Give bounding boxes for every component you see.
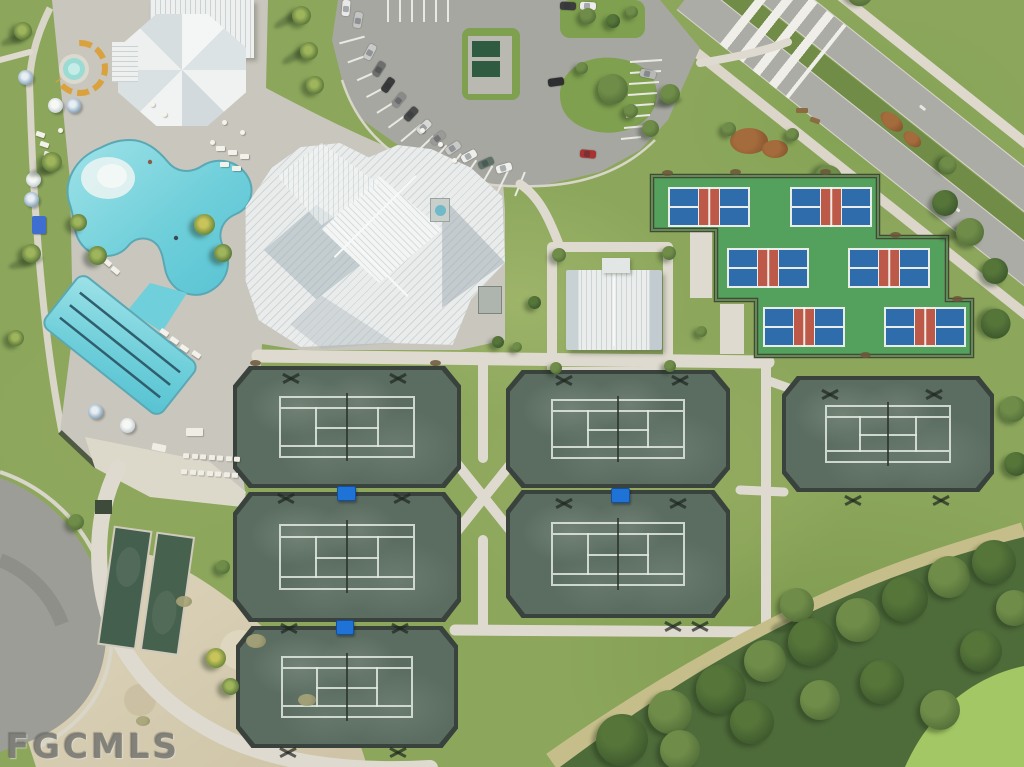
pool-umbrella [88,404,103,419]
court-bench [926,388,942,401]
tennis-court [233,492,461,622]
palm-tree [194,214,215,235]
pickleball-court [727,248,809,288]
sh rub [662,246,676,260]
shrub [552,248,566,262]
pool-lounger [216,146,225,151]
pool-beach-entry [97,164,127,188]
patio-table [240,130,245,135]
enclosure-roof [472,41,500,57]
pool-house-wing [112,42,138,82]
pool-umbrella [66,98,81,113]
mulch [952,296,963,302]
walkway-pickleball [720,304,744,354]
walkway-pickleball [690,232,712,298]
patio-table [162,112,167,117]
court-bench [672,374,688,387]
tree [780,588,814,622]
pool-house [112,0,264,134]
pickleball-line [670,206,699,208]
shrub [528,296,541,309]
tennis-net [346,393,348,461]
preserve-tree [960,630,1002,672]
patio-table [150,102,155,107]
parked-car [580,149,597,158]
garden-shed [95,500,112,514]
preserve-tree [860,660,904,704]
mulch [730,169,741,175]
spa-courtyard [430,198,450,222]
preserve-tree [800,680,840,720]
tennis-lines [825,405,951,463]
tree [956,218,984,246]
pool-umbrella [120,418,135,433]
court-bench [392,622,408,635]
court-bench [278,492,294,505]
pickleball-court [884,307,966,347]
enclosure-roof [472,61,500,77]
scrub-brush [246,634,266,648]
tennis-net [887,402,889,466]
pickleball-court [668,187,750,227]
parked-car [560,2,576,11]
pickleball-line [899,267,928,269]
pool-lounger [220,162,229,167]
tree [982,258,1008,284]
palm-tree [88,246,107,265]
preserve-tree [882,576,928,622]
equipment-pad [478,286,502,314]
preserve-tree [648,690,692,734]
tennis-surface [240,630,454,744]
shrub [626,6,638,18]
preserve-tree [660,730,700,767]
tennis-lines [551,399,685,458]
palm-tree [300,42,318,60]
court-bench [390,372,406,385]
tennis-court [506,370,730,488]
mulch [820,169,831,175]
swimmer [148,160,152,164]
tree [660,84,680,104]
shrub [550,362,562,374]
pickleball-line [792,206,821,208]
preserve-tree [744,640,786,682]
patio-table [210,140,215,145]
pickleball-line [765,326,794,328]
tennis-court [236,626,458,748]
mulch [430,360,441,366]
shade-cabana [337,486,356,501]
patio-table [222,120,227,125]
blue-daybed [32,216,46,234]
bench [796,108,808,113]
pool-umbrella [24,192,39,207]
palm-tree [222,678,239,695]
preserve-tree [972,540,1016,584]
shrub [722,122,736,136]
tree [68,514,84,530]
shrub [664,360,676,372]
preserve-tree [730,700,774,744]
shrub [606,14,620,28]
scrub-brush [298,694,316,706]
mulch [662,170,673,176]
pickleball-line [719,206,748,208]
pool-lounger [240,154,249,159]
mulch [860,352,871,358]
pickleball-line [935,326,964,328]
court-bench [394,492,410,505]
patio-table [452,158,457,163]
tennis-surface [786,380,990,488]
shrub [580,8,596,24]
walkway-crosswalk-link [700,42,788,63]
palm-tree [70,214,87,231]
court-bench [390,746,406,759]
parked-car [341,0,350,16]
pavilion-ridge [613,274,615,346]
tennis-court [506,490,730,618]
shade-cabana [336,620,354,635]
watermark: FGCMLS [6,727,180,767]
patio-table [420,128,425,133]
tennis-court [782,376,994,492]
tennis-court [233,366,461,488]
tennis-net [617,396,619,461]
terrace-table [186,428,203,436]
courts-pavilion [566,270,662,350]
pickleball-line [814,326,843,328]
shade-cabana [611,488,630,503]
preserve-tree [788,618,836,666]
shrub [512,342,522,352]
court-bench [822,388,838,401]
pickleball-line [841,206,870,208]
palm-tree [214,244,232,262]
preserve-tree [596,714,648,766]
court-bench [665,620,681,633]
pool-umbrella [48,98,63,113]
aerial-photo: FGCMLS [0,0,1024,767]
mulch [890,232,901,238]
shrub [624,104,638,118]
shrub [786,128,799,141]
court-bench [692,620,708,633]
tennis-net [346,653,348,721]
pickleball-net [830,187,832,227]
preserve-tree [996,590,1024,626]
pickleball-court [848,248,930,288]
preserve-tree [928,556,970,598]
court-bench [933,494,949,507]
pickleball-net [888,248,890,288]
tree [932,190,958,216]
tennis-surface [510,494,726,614]
walkway-promenade [258,356,768,362]
preserve-tree [836,598,880,642]
shrub [492,336,504,348]
pickleball-line [778,267,807,269]
pool-umbrella [18,70,33,85]
pickleball-net [924,307,926,347]
tennis-surface [510,374,726,484]
tennis-net [617,518,619,590]
tennis-lines [279,396,415,458]
palm-tree [42,152,62,172]
tennis-lines [279,524,415,590]
pickleball-line [850,267,879,269]
palm-tree [206,648,226,668]
tennis-lines [551,522,685,587]
court-bench [670,497,686,510]
palm-tree [292,6,311,25]
pickleball-net [767,248,769,288]
pickleball-court [763,307,845,347]
court-bench [281,622,297,635]
swimmer [174,236,178,240]
patio-table [58,128,63,133]
pickleball-line [729,267,758,269]
tennis-surface [237,496,457,618]
clubhouse [243,143,505,349]
pickleball-net [708,187,710,227]
court-bench [556,497,572,510]
tree [1004,452,1024,476]
tennis-lines [281,656,414,718]
palm-tree [22,244,41,263]
shrub [576,62,588,74]
scrub-brush [136,716,150,726]
patio-table [438,142,443,147]
tennis-net [346,520,348,593]
pool-lounger [228,150,237,155]
court-bench [280,746,296,759]
court-bench [283,372,299,385]
preserve-tree [920,690,960,730]
tree [642,120,659,137]
tree [216,560,230,574]
court-bench [845,494,861,507]
tree [1000,396,1024,422]
pool-lounger [232,166,241,171]
pavilion-entry-roof [602,258,630,273]
court-bench [556,374,572,387]
palm-tree [14,22,32,40]
mulch [250,360,261,366]
pickleball-net [803,307,805,347]
pickleball-court [790,187,872,227]
red-shrub-bed [762,140,788,158]
scrub-brush [176,596,192,607]
courtyard-spa [435,205,446,216]
shrub [696,326,707,337]
tree [598,74,628,104]
palm-tree [306,76,324,94]
palm-tree [8,330,24,346]
tennis-surface [237,370,457,484]
pickleball-line [886,326,915,328]
